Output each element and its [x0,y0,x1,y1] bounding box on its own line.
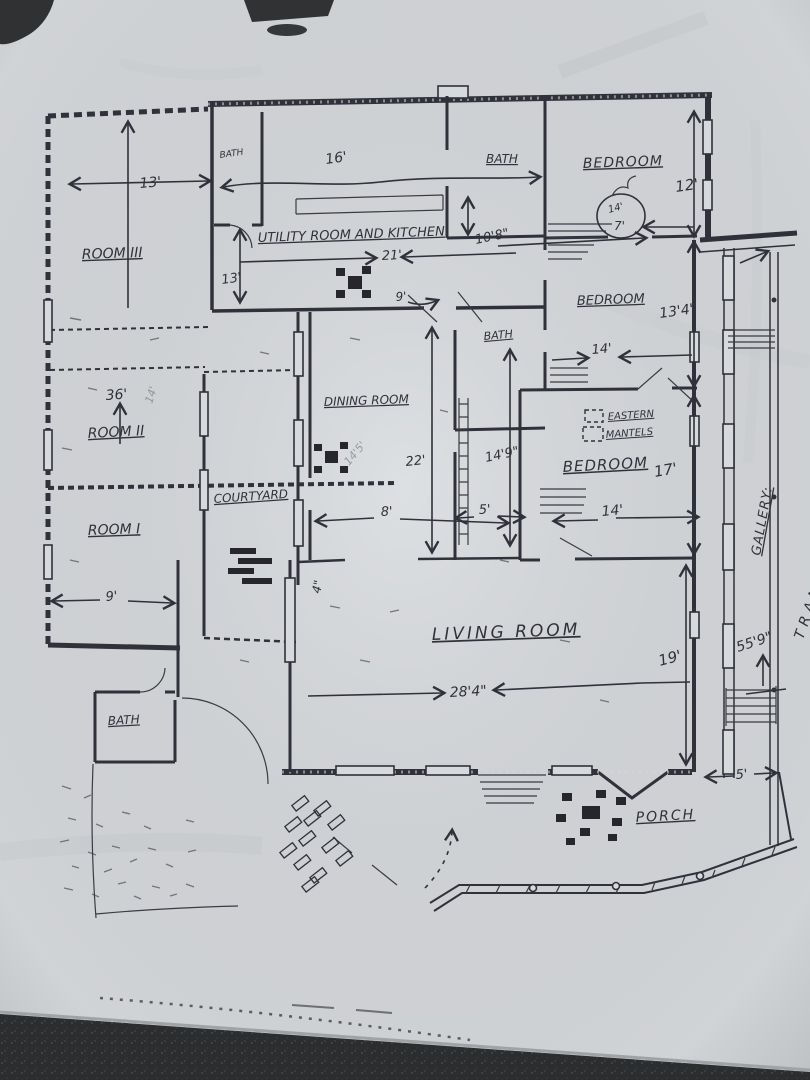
room-ii-label: ROOM II [87,423,144,442]
dim-room-i-9: 9' [105,589,118,605]
paper-background [0,0,810,1080]
dim-closet-7: 7' [614,219,625,233]
dim-bedroom-se-14: 14' [601,502,624,520]
room-i-label: ROOM I [88,521,141,539]
dim-courtyard-8: 8' [380,504,393,520]
dim-porch-5: 5' [735,767,748,783]
dim-dining-22: 22' [405,453,427,470]
dim-left-wing-36: 36' [105,387,128,404]
photographed-floorplan: ROOM III ROOM II ROOM I BATH BATH BATH B… [0,0,810,1080]
dim-kitchen-21: 21' [381,248,402,264]
dim-hall-9: 9' [395,289,407,304]
dim-kitchen-16: 16' [324,149,348,168]
floorplan-photo: ROOM III ROOM II ROOM I BATH BATH BATH B… [0,0,810,1080]
bath-top-label: BATH [486,152,518,166]
dim-hall-13: 13' [220,270,242,288]
room-iii-label: ROOM III [82,245,143,263]
porch-label: PORCH [635,807,695,826]
bedroom-ne-label: BEDROOM [583,153,664,172]
bath-sw-label: BATH [107,712,140,728]
bath-mid-label: BATH [483,327,513,343]
dining-room-label: DINING ROOM [324,392,410,409]
dim-room-iii-width: 13' [139,174,162,192]
bedroom-e-label: BEDROOM [577,292,645,309]
dim-bedroom-e-14: 14' [591,341,612,358]
chimney-bump [438,86,468,98]
dim-living-28-4: 28'4" [449,683,487,701]
dim-courtyard-5: 5' [478,502,491,518]
dim-bedroom-ne-12: 12' [674,175,699,196]
